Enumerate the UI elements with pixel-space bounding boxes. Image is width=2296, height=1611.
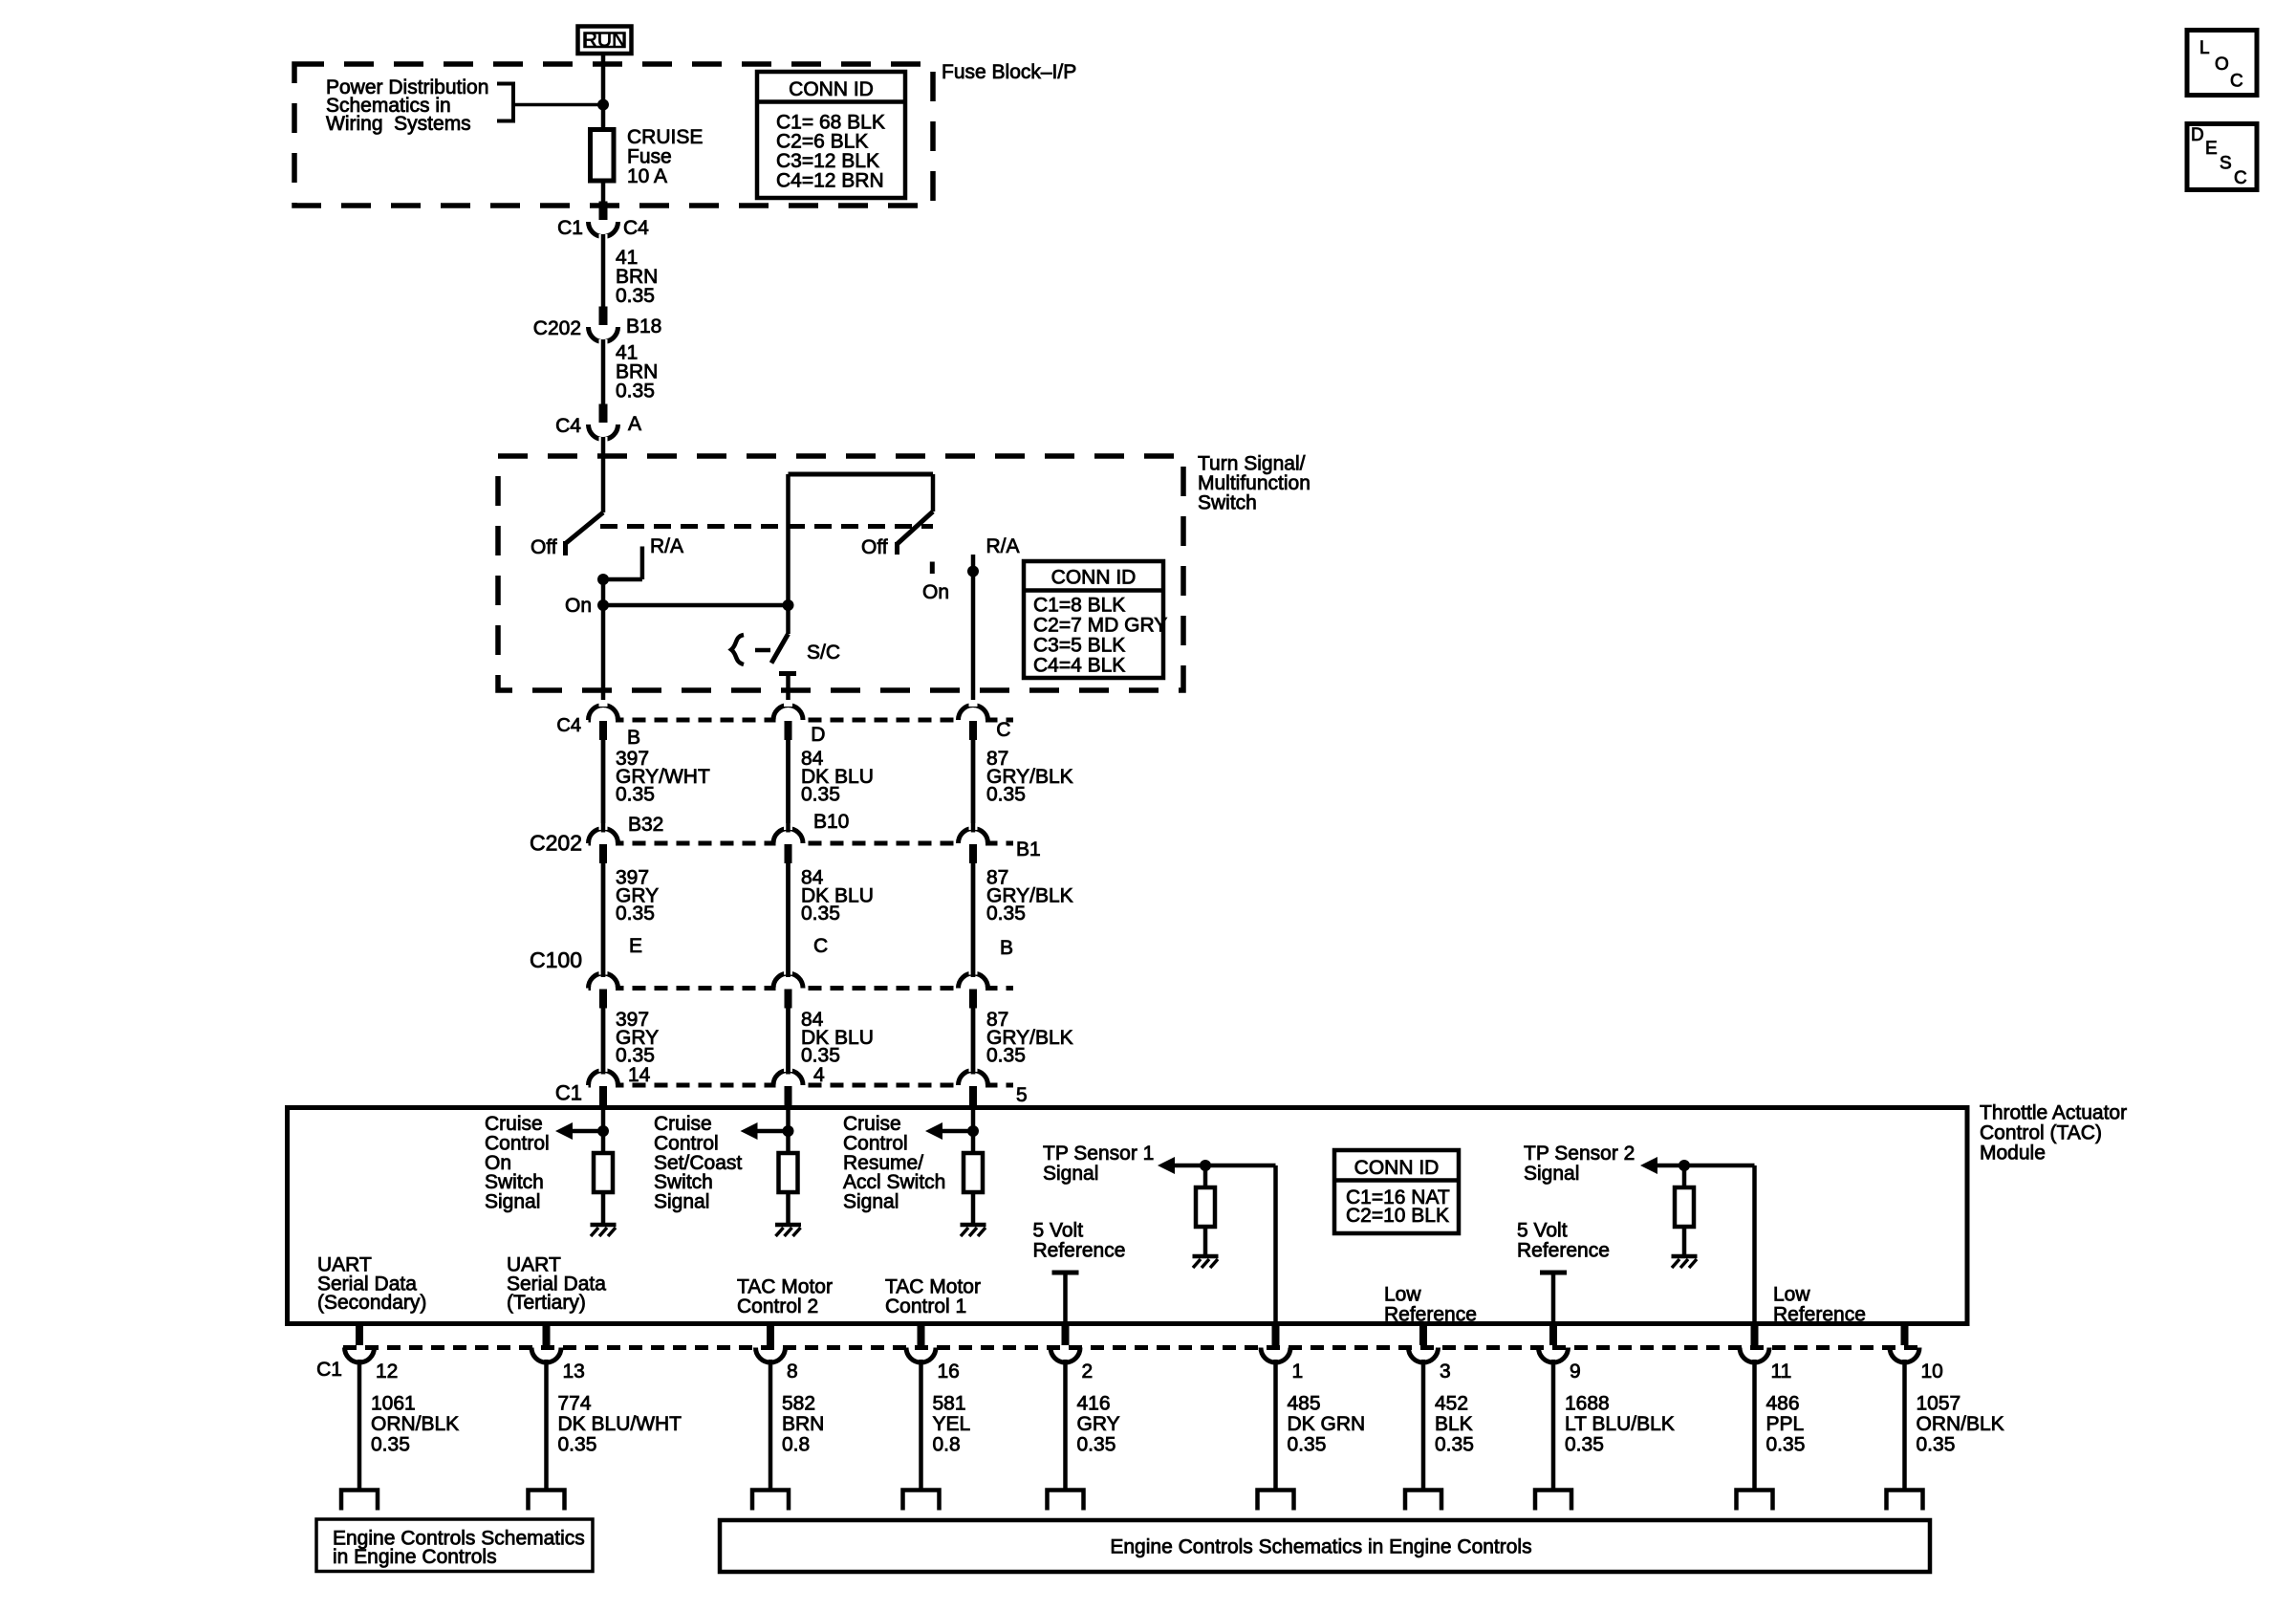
svg-text:R/A: R/A bbox=[650, 535, 683, 557]
svg-text:TP Sensor 2: TP Sensor 2 bbox=[1524, 1143, 1635, 1165]
svg-text:C4: C4 bbox=[623, 217, 649, 239]
svg-text:0.35: 0.35 bbox=[1435, 1434, 1474, 1456]
svg-text:0.35: 0.35 bbox=[1288, 1434, 1327, 1456]
svg-text:B: B bbox=[1000, 937, 1013, 959]
svg-text:0.35: 0.35 bbox=[986, 1045, 1026, 1067]
svg-text:DK GRN: DK GRN bbox=[1288, 1413, 1366, 1435]
svg-text:Control 1: Control 1 bbox=[885, 1295, 966, 1317]
svg-text:C1=8 BLK: C1=8 BLK bbox=[1033, 595, 1125, 617]
svg-text:Signal: Signal bbox=[485, 1191, 540, 1213]
svg-text:Low: Low bbox=[1384, 1284, 1421, 1306]
svg-text:B10: B10 bbox=[813, 811, 849, 833]
svg-text:C2=10 BLK: C2=10 BLK bbox=[1346, 1205, 1449, 1227]
svg-text:Signal: Signal bbox=[1043, 1163, 1098, 1185]
svg-text:C1: C1 bbox=[316, 1359, 342, 1381]
svg-text:0.35: 0.35 bbox=[616, 784, 655, 806]
svg-text:9: 9 bbox=[1570, 1361, 1581, 1382]
svg-text:0.35: 0.35 bbox=[801, 903, 840, 925]
svg-text:0.35: 0.35 bbox=[616, 381, 655, 403]
svg-text:Low: Low bbox=[1773, 1284, 1810, 1306]
svg-text:A: A bbox=[628, 413, 641, 435]
svg-text:3: 3 bbox=[1440, 1361, 1451, 1382]
svg-text:R/A: R/A bbox=[986, 535, 1020, 557]
svg-text:B18: B18 bbox=[626, 316, 661, 337]
svg-text:Signal: Signal bbox=[654, 1191, 709, 1213]
svg-text:D: D bbox=[811, 724, 825, 746]
svg-text:486: 486 bbox=[1766, 1393, 1800, 1415]
svg-text:On: On bbox=[565, 595, 592, 617]
svg-text:C4: C4 bbox=[555, 415, 581, 437]
svg-text:DK BLU/WHT: DK BLU/WHT bbox=[558, 1413, 682, 1435]
svg-text:C4: C4 bbox=[556, 715, 581, 736]
svg-text:Reference: Reference bbox=[1384, 1304, 1477, 1326]
svg-text:582: 582 bbox=[782, 1393, 815, 1415]
svg-text:O: O bbox=[2215, 54, 2229, 75]
svg-text:BRN: BRN bbox=[782, 1413, 824, 1435]
svg-text:0.35: 0.35 bbox=[801, 784, 840, 806]
svg-text:C1: C1 bbox=[557, 217, 583, 239]
svg-text:774: 774 bbox=[558, 1393, 592, 1415]
svg-text:Reference: Reference bbox=[1773, 1304, 1866, 1326]
svg-text:C4=12 BRN: C4=12 BRN bbox=[776, 170, 884, 192]
svg-text:8: 8 bbox=[787, 1361, 798, 1382]
svg-text:C202: C202 bbox=[533, 317, 581, 339]
svg-text:Wiring Systems: Wiring Systems bbox=[326, 113, 471, 135]
svg-text:(Secondary): (Secondary) bbox=[317, 1292, 426, 1314]
svg-text:in Engine Controls: in Engine Controls bbox=[333, 1546, 497, 1568]
svg-text:S/C: S/C bbox=[807, 642, 840, 664]
svg-text:0.35: 0.35 bbox=[986, 903, 1026, 925]
svg-text:Signal: Signal bbox=[843, 1191, 899, 1213]
svg-text:1061: 1061 bbox=[371, 1393, 416, 1415]
svg-text:C2=7 MD GRY: C2=7 MD GRY bbox=[1033, 615, 1167, 637]
svg-text:C202: C202 bbox=[530, 831, 582, 856]
svg-text:C: C bbox=[2230, 72, 2243, 92]
svg-text:Reference: Reference bbox=[1517, 1240, 1610, 1262]
svg-text:Module: Module bbox=[1980, 1143, 2046, 1165]
svg-text:B32: B32 bbox=[628, 814, 663, 836]
svg-text:0.35: 0.35 bbox=[616, 285, 655, 307]
svg-text:0.35: 0.35 bbox=[1917, 1434, 1956, 1456]
svg-text:581: 581 bbox=[933, 1393, 966, 1415]
svg-text:5 Volt: 5 Volt bbox=[1033, 1220, 1084, 1242]
svg-text:0.8: 0.8 bbox=[782, 1434, 810, 1456]
svg-text:S: S bbox=[2220, 154, 2232, 174]
svg-text:Off: Off bbox=[861, 536, 888, 558]
svg-text:0.35: 0.35 bbox=[371, 1434, 410, 1456]
svg-text:B1: B1 bbox=[1016, 838, 1041, 860]
svg-text:GRY: GRY bbox=[1077, 1413, 1120, 1435]
svg-text:ORN/BLK: ORN/BLK bbox=[371, 1413, 459, 1435]
svg-text:5: 5 bbox=[1016, 1084, 1028, 1106]
svg-text:D: D bbox=[2191, 125, 2204, 145]
svg-text:0.35: 0.35 bbox=[1565, 1434, 1604, 1456]
svg-text:10: 10 bbox=[1921, 1361, 1943, 1382]
svg-text:1057: 1057 bbox=[1917, 1393, 1961, 1415]
svg-text:Control (TAC): Control (TAC) bbox=[1980, 1122, 2102, 1144]
svg-text:Engine Controls Schematics in: Engine Controls Schematics in Engine Con… bbox=[1110, 1536, 1531, 1558]
svg-text:0.35: 0.35 bbox=[986, 784, 1026, 806]
svg-text:11: 11 bbox=[1771, 1361, 1792, 1382]
svg-text:C1: C1 bbox=[555, 1081, 582, 1105]
svg-text:0.35: 0.35 bbox=[1766, 1434, 1806, 1456]
svg-text:CONN ID: CONN ID bbox=[1354, 1157, 1440, 1179]
svg-text:16: 16 bbox=[938, 1361, 960, 1382]
svg-text:ORN/BLK: ORN/BLK bbox=[1917, 1413, 2004, 1435]
svg-text:Switch: Switch bbox=[1198, 492, 1257, 514]
svg-text:L: L bbox=[2199, 38, 2210, 58]
svg-text:1688: 1688 bbox=[1565, 1393, 1610, 1415]
svg-text:14: 14 bbox=[628, 1064, 651, 1086]
svg-text:On: On bbox=[922, 581, 949, 603]
svg-text:4: 4 bbox=[813, 1064, 825, 1086]
svg-text:B: B bbox=[627, 727, 640, 749]
svg-text:C: C bbox=[2234, 168, 2247, 188]
svg-text:0.35: 0.35 bbox=[1077, 1434, 1116, 1456]
svg-text:1: 1 bbox=[1292, 1361, 1304, 1382]
svg-text:E: E bbox=[2205, 139, 2218, 159]
svg-text:YEL: YEL bbox=[933, 1413, 971, 1435]
svg-text:(Tertiary): (Tertiary) bbox=[507, 1292, 586, 1314]
svg-text:5 Volt: 5 Volt bbox=[1517, 1220, 1568, 1242]
svg-text:CONN ID: CONN ID bbox=[789, 78, 874, 100]
svg-text:13: 13 bbox=[563, 1361, 585, 1382]
svg-text:Control 2: Control 2 bbox=[737, 1295, 818, 1317]
svg-text:C100: C100 bbox=[530, 947, 582, 972]
svg-text:416: 416 bbox=[1077, 1393, 1111, 1415]
svg-text:C3=5 BLK: C3=5 BLK bbox=[1033, 635, 1125, 657]
svg-text:0.35: 0.35 bbox=[616, 903, 655, 925]
svg-text:Throttle Actuator: Throttle Actuator bbox=[1980, 1102, 2127, 1124]
svg-text:Reference: Reference bbox=[1033, 1240, 1126, 1262]
svg-text:E: E bbox=[629, 935, 642, 957]
svg-text:TP Sensor 1: TP Sensor 1 bbox=[1043, 1143, 1154, 1165]
svg-text:LT BLU/BLK: LT BLU/BLK bbox=[1565, 1413, 1675, 1435]
svg-text:0.8: 0.8 bbox=[933, 1434, 961, 1456]
svg-text:12: 12 bbox=[376, 1361, 398, 1382]
svg-text:0.35: 0.35 bbox=[558, 1434, 597, 1456]
svg-text:Signal: Signal bbox=[1524, 1163, 1579, 1185]
svg-text:Off: Off bbox=[531, 536, 557, 558]
svg-text:485: 485 bbox=[1288, 1393, 1321, 1415]
svg-text:C: C bbox=[813, 935, 828, 957]
svg-text:BLK: BLK bbox=[1435, 1413, 1473, 1435]
svg-text:Fuse Block–I/P: Fuse Block–I/P bbox=[942, 61, 1076, 83]
svg-text:10 A: 10 A bbox=[627, 165, 667, 187]
svg-text:452: 452 bbox=[1435, 1393, 1468, 1415]
svg-text:C4=4 BLK: C4=4 BLK bbox=[1033, 655, 1125, 677]
svg-text:PPL: PPL bbox=[1766, 1413, 1805, 1435]
svg-text:CONN ID: CONN ID bbox=[1051, 567, 1137, 589]
svg-text:2: 2 bbox=[1082, 1361, 1094, 1382]
svg-text:C: C bbox=[996, 719, 1010, 741]
svg-text:RUN: RUN bbox=[583, 30, 627, 52]
